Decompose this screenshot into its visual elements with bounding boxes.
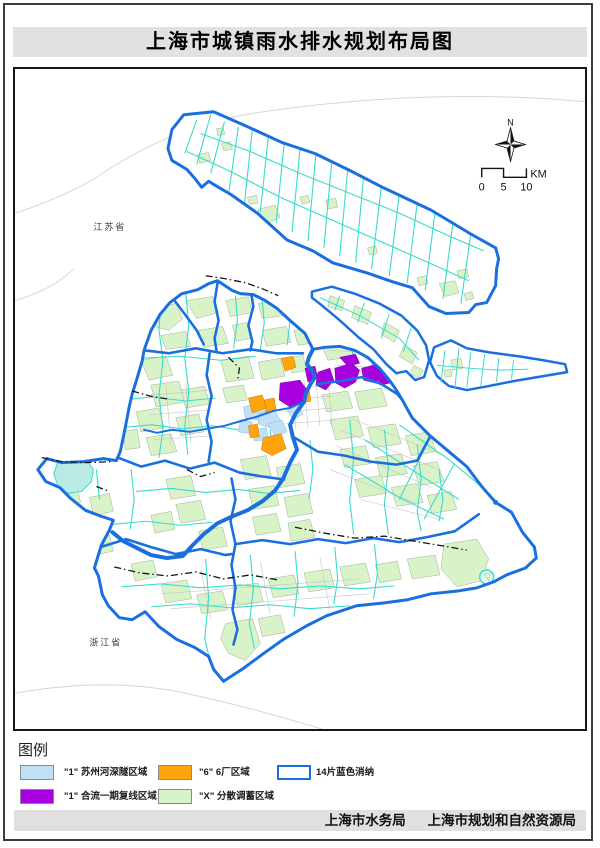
map-canvas: 江苏省 浙江省 N KM 0 5 10 — [13, 67, 587, 731]
page-title: 上海市城镇雨水排水规划布局图 — [13, 27, 587, 57]
legend-heading: 图例 — [18, 739, 48, 760]
legend-swatch-combined-sewer — [20, 789, 54, 804]
legend-swatch-dispersed-storage — [158, 789, 192, 804]
footer-bar: 上海市水务局 上海市规划和自然资源局 — [14, 810, 586, 831]
scale-tick-10: 10 — [520, 181, 532, 193]
hengsha-island — [430, 340, 567, 390]
north-arrow: N — [496, 118, 526, 162]
planning-map: 江苏省 浙江省 N KM 0 5 10 — [15, 69, 585, 729]
scale-bar: KM 0 5 10 — [479, 168, 547, 193]
footer-agency-water-bureau: 上海市水务局 — [325, 813, 406, 828]
legend-label-six-plants: "6" 6厂区域 — [199, 765, 250, 780]
scale-tick-0: 0 — [479, 181, 485, 193]
scale-unit: KM — [530, 168, 546, 180]
legend-label-dispersed-storage: "X" 分散调蓄区域 — [199, 789, 274, 804]
legend-label-suzhou-tunnel: "1" 苏州河深隧区域 — [64, 765, 147, 780]
legend-swatch-blue-absorption — [277, 765, 311, 780]
legend-label-blue-absorption: 14片蓝色消纳 — [316, 765, 374, 780]
zhejiang-label: 浙江省 — [89, 637, 122, 648]
mainland-shanghai — [38, 281, 537, 682]
legend-swatch-six-plants — [158, 765, 192, 780]
scale-tick-5: 5 — [501, 181, 507, 193]
coast-node-marker — [493, 500, 498, 505]
legend-swatch-suzhou-tunnel — [20, 765, 54, 780]
footer-agency-planning-bureau: 上海市规划和自然资源局 — [428, 813, 577, 828]
legend-label-combined-sewer: "1" 合流一期复线区域 — [64, 789, 157, 804]
jiangsu-label: 江苏省 — [93, 221, 126, 232]
